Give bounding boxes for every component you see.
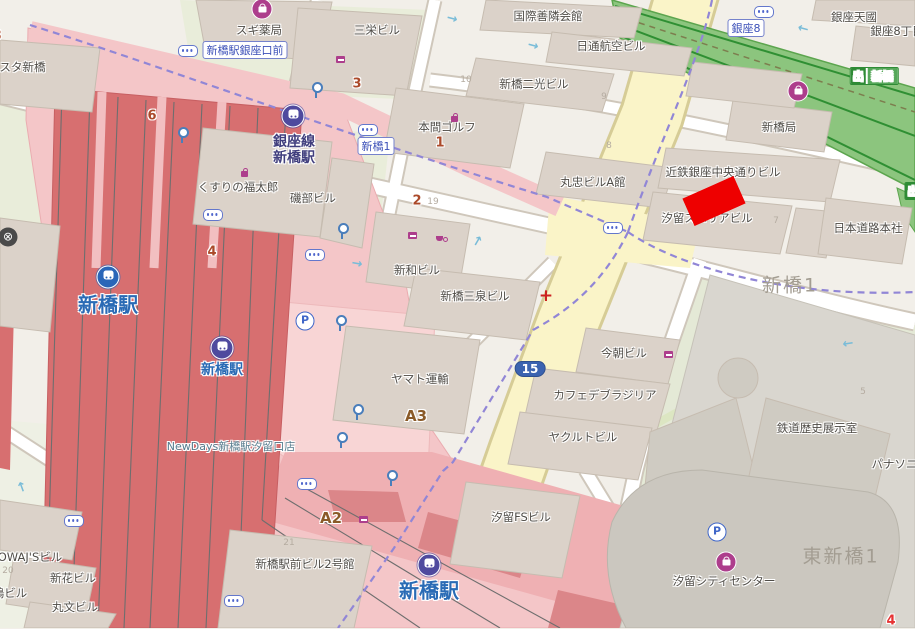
map-page: { "marker": {"color": "#ee0000"}, "label… (0, 0, 915, 628)
map-canvas[interactable] (0, 0, 915, 628)
